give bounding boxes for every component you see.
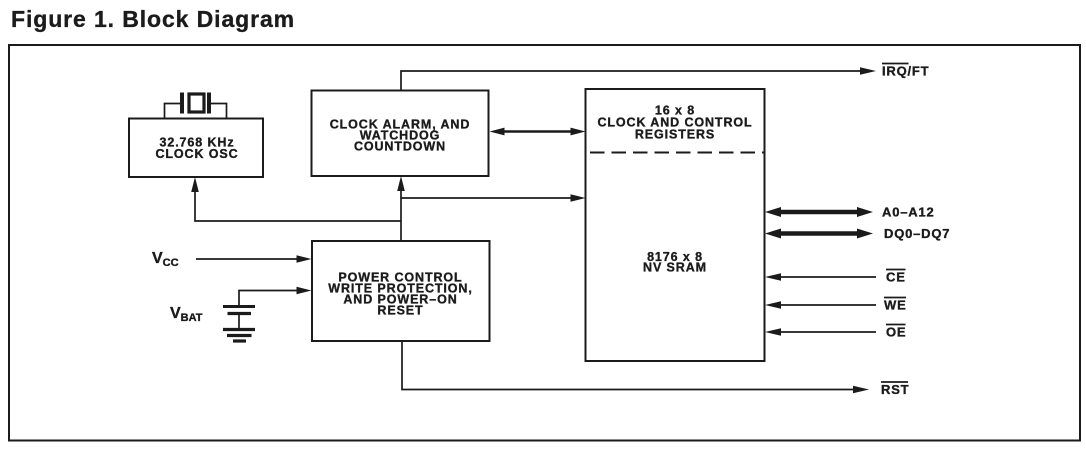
svg-text:A0–A12: A0–A12: [882, 205, 935, 220]
svg-text:DQ0–DQ7: DQ0–DQ7: [884, 226, 950, 241]
svg-text:WE: WE: [884, 298, 907, 313]
svg-text:Figure 1. Block Diagram: Figure 1. Block Diagram: [11, 6, 295, 32]
svg-text:RST: RST: [881, 382, 909, 397]
svg-text:CE: CE: [886, 270, 906, 285]
svg-text:REGISTERS: REGISTERS: [635, 127, 715, 141]
svg-text:RESET: RESET: [377, 303, 423, 317]
svg-text:OE: OE: [886, 325, 906, 340]
svg-text:IRQ/FT: IRQ/FT: [882, 64, 929, 79]
svg-text:NV SRAM: NV SRAM: [643, 261, 707, 275]
svg-text:COUNTDOWN: COUNTDOWN: [354, 139, 446, 153]
svg-text:CLOCK OSC: CLOCK OSC: [155, 147, 238, 161]
